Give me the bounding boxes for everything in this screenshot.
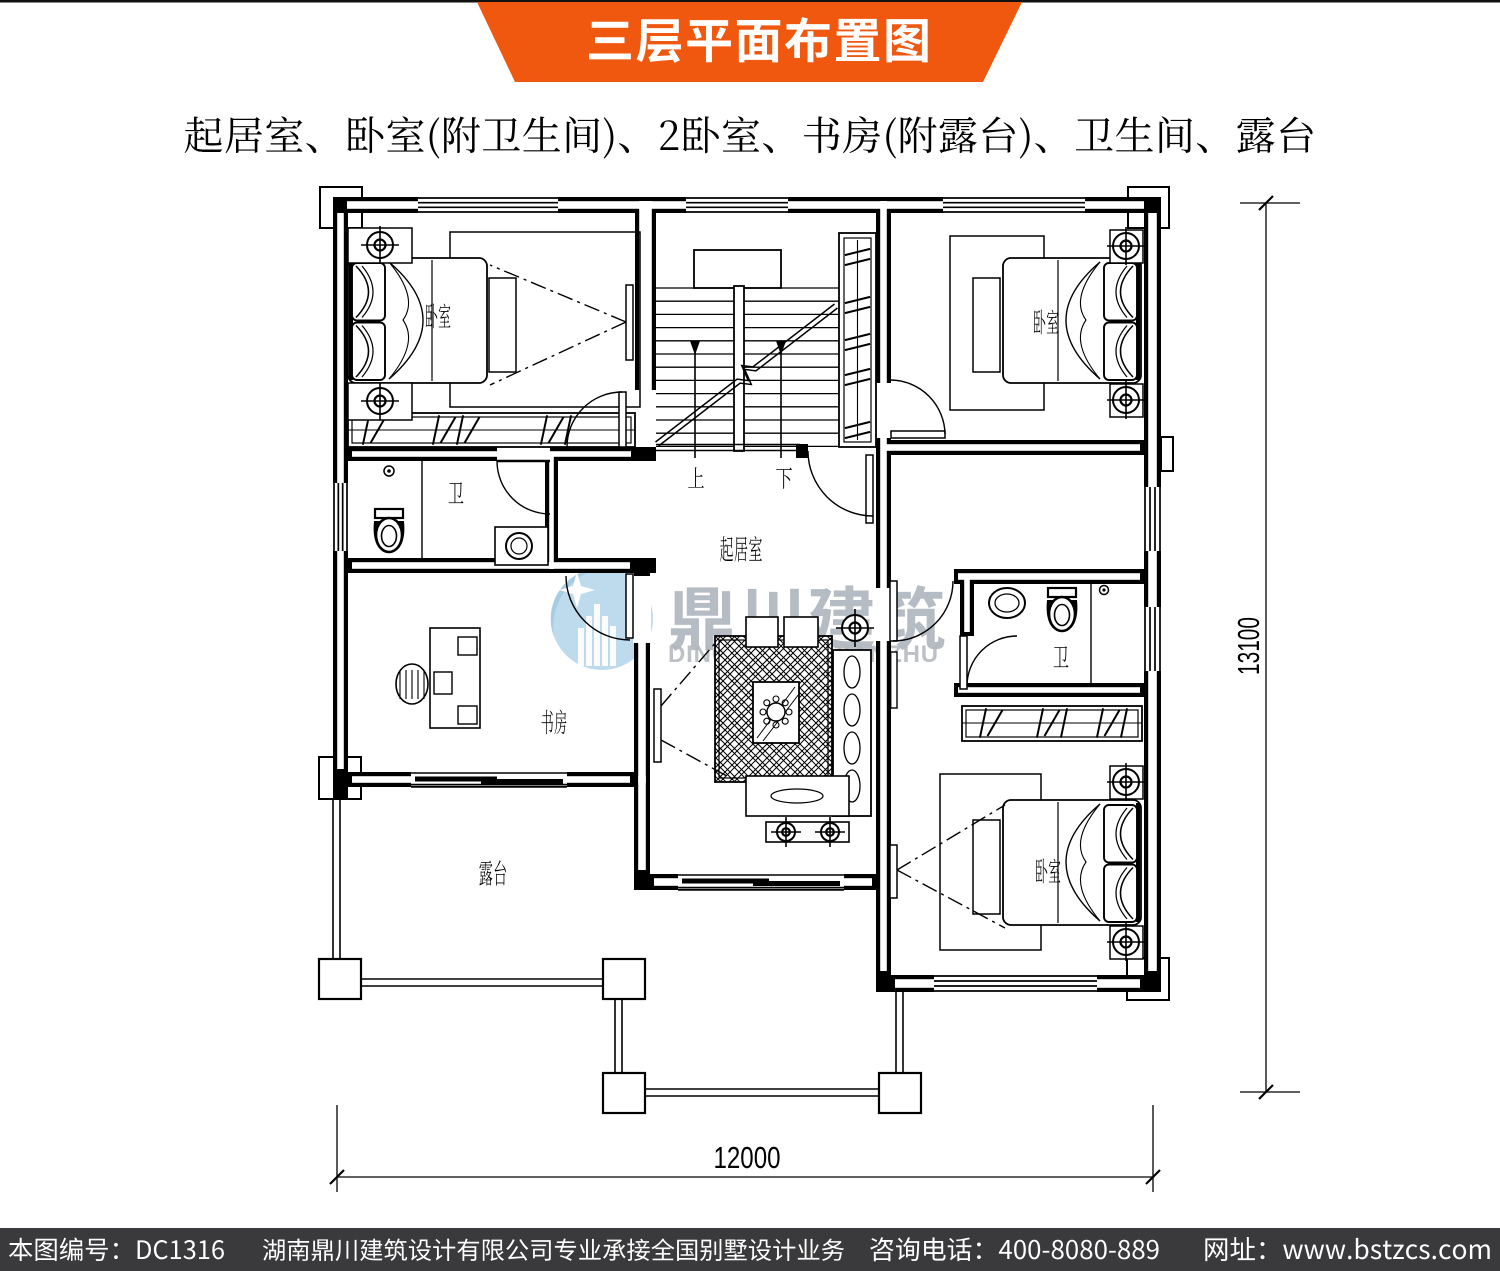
- svg-text:13100: 13100: [1231, 617, 1266, 675]
- svg-text:12000: 12000: [714, 1140, 781, 1175]
